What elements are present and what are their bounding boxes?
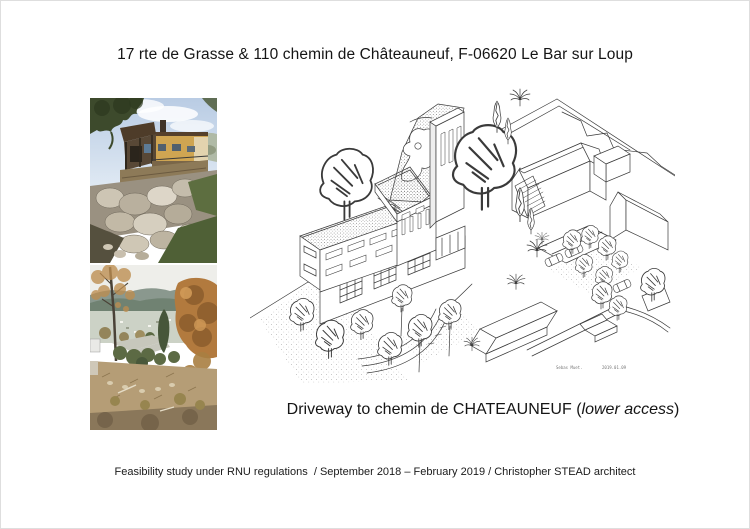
- tree-planter: [641, 269, 670, 312]
- drawing-date: 2019.01.09: [602, 365, 627, 370]
- photo-house-illustration: [90, 98, 217, 263]
- drawing-caption: Driveway to chemin de CHATEAUNEUF (lower…: [253, 401, 713, 419]
- axonometric-site-drawing: Sebas Muet. 2019.01.09: [250, 88, 675, 393]
- site-sketch: Sebas Muet. 2019.01.09: [250, 88, 675, 393]
- caption-text: Driveway to chemin de CHATEAUNEUF (: [287, 401, 582, 418]
- bottom-house-large: [470, 302, 557, 362]
- slide-page: 17 rte de Grasse & 110 chemin de Château…: [0, 0, 750, 529]
- photo-valley-view: [90, 265, 217, 430]
- footer-note: Feasibility study under RNU regulations …: [0, 466, 750, 478]
- photo-house-on-rocky-slope: [90, 98, 217, 263]
- photo-valley-illustration: [90, 265, 217, 430]
- bottom-house-small: [580, 314, 617, 342]
- page-title: 17 rte de Grasse & 110 chemin de Château…: [0, 46, 750, 64]
- caption-suffix: ): [674, 401, 679, 418]
- neighbour-house-2: [610, 192, 668, 250]
- caption-italic: lower access: [582, 401, 674, 418]
- main-building: [300, 108, 465, 324]
- drawing-signature: Sebas Muet.: [556, 365, 583, 370]
